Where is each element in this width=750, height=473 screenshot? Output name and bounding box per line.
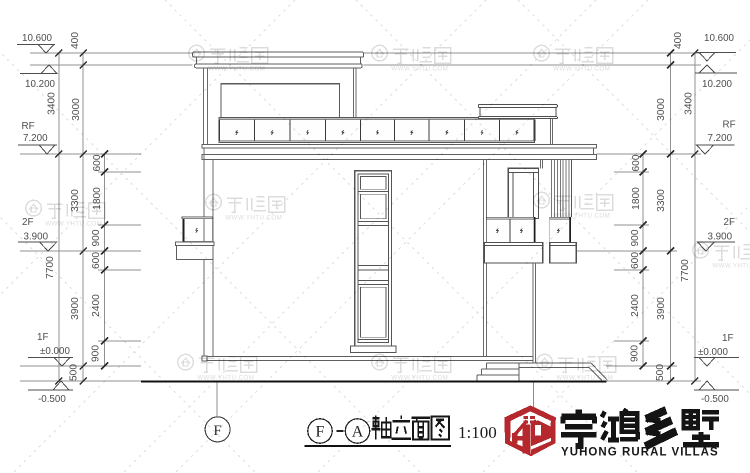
svg-text:7.200: 7.200 [708, 133, 733, 144]
svg-text:1800: 1800 [631, 187, 642, 210]
svg-text:F: F [316, 424, 325, 441]
svg-text:3400: 3400 [684, 92, 695, 115]
svg-text:-0.500: -0.500 [701, 394, 729, 405]
svg-text:3.900: 3.900 [708, 231, 733, 242]
svg-text:3900: 3900 [70, 297, 81, 320]
svg-text:7700: 7700 [680, 259, 691, 282]
svg-text:-0.500: -0.500 [38, 394, 66, 405]
svg-text:3300: 3300 [656, 189, 667, 212]
svg-text:1:100: 1:100 [458, 423, 497, 442]
svg-text:2F: 2F [22, 217, 33, 228]
svg-text:900: 900 [630, 229, 641, 246]
svg-text:10.600: 10.600 [704, 33, 735, 44]
svg-text:3000: 3000 [656, 98, 667, 121]
svg-text:1F: 1F [722, 333, 733, 344]
svg-text:RF: RF [22, 121, 35, 132]
svg-text:600: 600 [630, 252, 641, 269]
svg-text:600: 600 [91, 252, 102, 269]
svg-text:2F: 2F [724, 217, 735, 228]
svg-text:500: 500 [69, 364, 80, 381]
svg-text:RF: RF [723, 120, 736, 131]
svg-text:YUHONG RURAL VILLAS: YUHONG RURAL VILLAS [561, 447, 719, 459]
svg-text:2400: 2400 [91, 294, 102, 317]
svg-text:400: 400 [70, 32, 81, 49]
svg-text:±0.000: ±0.000 [40, 346, 70, 357]
svg-text:600: 600 [92, 154, 103, 171]
svg-text:A: A [352, 424, 364, 441]
svg-text:10.200: 10.200 [25, 79, 56, 90]
svg-text:3000: 3000 [71, 98, 82, 121]
svg-text:10.600: 10.600 [22, 33, 53, 44]
svg-text:3900: 3900 [656, 297, 667, 320]
svg-text:3400: 3400 [47, 92, 58, 115]
svg-text:±0.000: ±0.000 [698, 347, 728, 358]
svg-text:900: 900 [91, 229, 102, 246]
svg-text:3.900: 3.900 [24, 231, 49, 242]
svg-text:600: 600 [631, 154, 642, 171]
svg-text:500: 500 [655, 364, 666, 381]
svg-text:10.200: 10.200 [702, 79, 733, 90]
svg-text:7.200: 7.200 [23, 133, 48, 144]
svg-text:2400: 2400 [630, 294, 641, 317]
svg-text:900: 900 [630, 345, 641, 362]
svg-text:1F: 1F [37, 332, 48, 343]
svg-text:400: 400 [673, 32, 684, 49]
svg-text:900: 900 [91, 345, 102, 362]
